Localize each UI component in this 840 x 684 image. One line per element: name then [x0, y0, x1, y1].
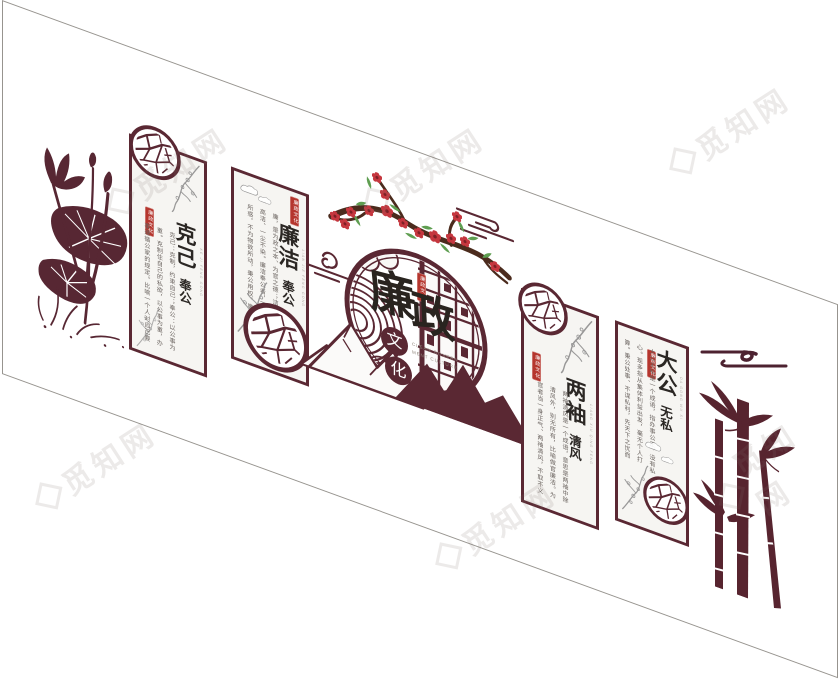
- panel-lianjie-fenggong: 廉政文化 廉洁 奉公 LIAN JIE FENG GONG 廉，是为政之本、为官…: [231, 166, 309, 386]
- pinyin-label: KE JI FENG GONG: [199, 248, 203, 298]
- ink-cloud-icon: [257, 193, 272, 206]
- panel-title-sub: 奉公: [280, 277, 293, 307]
- center-emblem: 廉政文化 廉 政 文 化 CLEAN GOVERN MENT CULTURE: [299, 137, 539, 454]
- cloud-motif-icon: [698, 342, 790, 374]
- watermark-logo-icon: [669, 147, 696, 174]
- panel-desc: 克己：克制，约束自己；奉公：以公事为重。克制住自己的私欲，以公事为重，办事遵循公…: [139, 220, 177, 358]
- panel-liangxiu-qingfeng: 廉政文化 两袖 清风 LIANG XIU QING FENG 两袖清风是一个成语…: [521, 288, 599, 530]
- ice-crack-circle-icon: [129, 117, 181, 188]
- watermark-text: 觅知网: [686, 75, 798, 169]
- pinyin-label: DA GONG WU SI: [679, 376, 683, 420]
- cloud-motif-icon: [307, 245, 349, 285]
- ink-cloud-icon: [660, 453, 674, 465]
- ice-crack-circle-icon: [643, 469, 689, 532]
- panel-keji-fenggong: 廉政文化 克己 奉公 KE JI FENG GONG 克己：克制，约束自己；奉公…: [129, 133, 207, 377]
- panel-title: 大公 无私: [655, 346, 677, 435]
- watermark: 觅知网: [661, 75, 798, 185]
- pinyin-label: LIANG XIU QING FENG: [589, 404, 593, 466]
- panel-title-main: 大公: [654, 345, 678, 400]
- panel-title: 廉洁 奉公: [277, 220, 299, 309]
- poster-canvas: 廉政文化 克己 奉公 KE JI FENG GONG 克己：克制，约束自己；奉公…: [0, 0, 840, 684]
- watermark: 觅知网: [27, 410, 164, 520]
- bamboo-icon: [693, 365, 797, 617]
- panel-dagong-wusi: 廉政文化 大公 无私 DA GONG WU SI 大公无私是一个成语，指办事公正…: [615, 320, 689, 547]
- panel-title-sub: 无私: [658, 403, 671, 433]
- seal-stamp: 廉政文化: [290, 196, 299, 227]
- watermark-logo-icon: [435, 542, 462, 569]
- watermark-logo-icon: [35, 482, 62, 509]
- panel-title-sub: 奉公: [177, 276, 190, 306]
- panel-desc: 两袖清风是一个成语，意思是两袖中除清风外，别无所有，比喻做官廉洁。为官者当一身正…: [534, 380, 570, 511]
- lotus-icon: [31, 126, 141, 366]
- panel-title: 克己 奉公: [174, 219, 196, 308]
- ink-cloud-icon: [239, 180, 259, 197]
- seal-stamp: 廉政文化: [532, 351, 541, 382]
- ice-crack-circle-icon: [518, 275, 568, 343]
- slanted-wall-surface: 廉政文化 克己 奉公 KE JI FENG GONG 克己：克制，约束自己；奉公…: [2, 0, 838, 678]
